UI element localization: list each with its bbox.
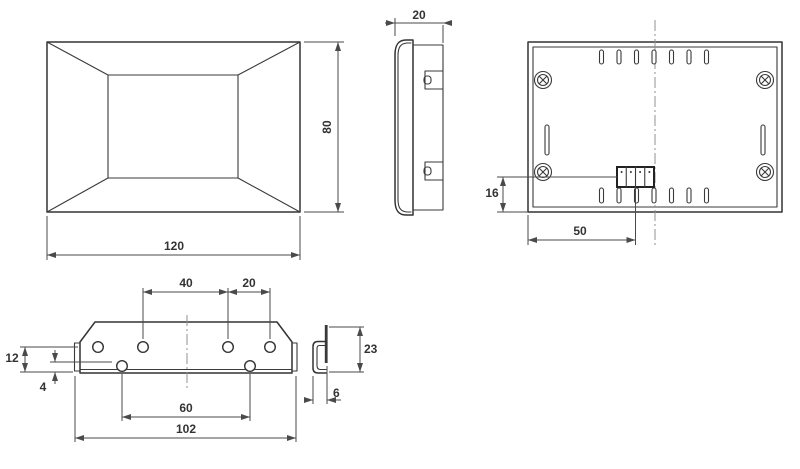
dim-lower-holes: 60: [122, 374, 250, 421]
side-slot: [761, 125, 765, 155]
back-view: 16 50: [485, 20, 782, 247]
side-view: 20: [385, 8, 452, 215]
vent-slot: [705, 50, 709, 64]
vent-slot: [687, 188, 691, 203]
vent-slot: [600, 50, 604, 64]
dim-bracket-edge-height: 12: [5, 347, 78, 372]
dim-label-terminal-x: 50: [573, 224, 587, 238]
terminal-pin: [630, 171, 632, 173]
mounting-hole: [265, 342, 276, 353]
clip-tab: [424, 71, 443, 89]
dim-upper-holes-left: 40: [143, 276, 228, 339]
vent-slot: [600, 188, 604, 203]
bevel-edge-line: [238, 42, 300, 75]
vent-slot: [670, 50, 674, 64]
bracket-front-view: 40 20 12 4 60 102: [5, 276, 297, 442]
dim-label-front-height: 80: [320, 120, 334, 134]
screw-icon: [757, 72, 774, 89]
vent-slot: [635, 50, 639, 64]
vent-slot: [670, 188, 674, 203]
vent-slot: [687, 50, 691, 64]
front-outer-edge: [47, 42, 300, 212]
dim-label-terminal-height: 16: [485, 186, 499, 200]
dim-label-4: 4: [40, 380, 47, 394]
mounting-hole: [223, 342, 234, 353]
vent-slots-bottom: [600, 188, 709, 203]
dim-label-side-depth: 20: [412, 8, 426, 22]
dim-front-width: 120: [47, 216, 300, 260]
terminal-pin: [648, 171, 650, 173]
front-inner-face: [108, 75, 238, 178]
vent-slot: [617, 188, 621, 203]
bevel-edge-line: [238, 178, 300, 212]
dim-label-23: 23: [364, 342, 378, 356]
terminal-pin: [621, 171, 623, 173]
bracket-clip-profile: [313, 342, 326, 374]
tab-notch: [425, 71, 443, 89]
screw-icon: [535, 72, 552, 89]
dim-label-60: 60: [179, 401, 193, 415]
dim-label-20: 20: [242, 276, 256, 290]
dim-label-40: 40: [179, 276, 193, 290]
vent-slot: [652, 50, 656, 64]
dim-clip-height: 23: [329, 327, 378, 372]
dim-label-6: 6: [333, 386, 340, 400]
dim-front-height: 80: [304, 42, 344, 212]
mounting-hole: [138, 342, 149, 353]
mounting-hole: [93, 342, 104, 353]
clip-tab: [424, 162, 443, 180]
vent-slot: [705, 188, 709, 203]
bracket-clip-inner: [317, 346, 326, 370]
bracket-plate-edge: [325, 325, 328, 363]
dim-label-12: 12: [5, 351, 19, 365]
bracket-outline: [80, 322, 292, 373]
vent-slot: [652, 188, 656, 203]
drawing-canvas: 120 80 20: [0, 0, 800, 469]
front-view: 120 80: [47, 42, 344, 260]
screw-icon: [757, 164, 774, 181]
dim-side-depth: 20: [385, 8, 452, 43]
side-slot: [545, 125, 549, 155]
dim-upper-holes-right: 20: [228, 276, 270, 339]
bevel-edge-line: [47, 178, 108, 212]
vent-slot: [617, 50, 621, 64]
mounting-hole: [117, 361, 128, 372]
bevel-edge-line: [47, 42, 108, 75]
dim-label-front-width: 120: [164, 239, 184, 253]
bezel-inner-curve: [398, 43, 411, 212]
vent-slots-top: [600, 50, 709, 64]
bracket-side-view: 23 6: [304, 325, 378, 404]
screw-icon: [535, 164, 552, 181]
tab-notch: [425, 162, 443, 180]
body-profile: [413, 45, 443, 210]
dim-label-102: 102: [176, 422, 196, 436]
terminal-block: [617, 167, 654, 187]
mounting-hole: [245, 361, 256, 372]
terminal-pin: [639, 171, 641, 173]
